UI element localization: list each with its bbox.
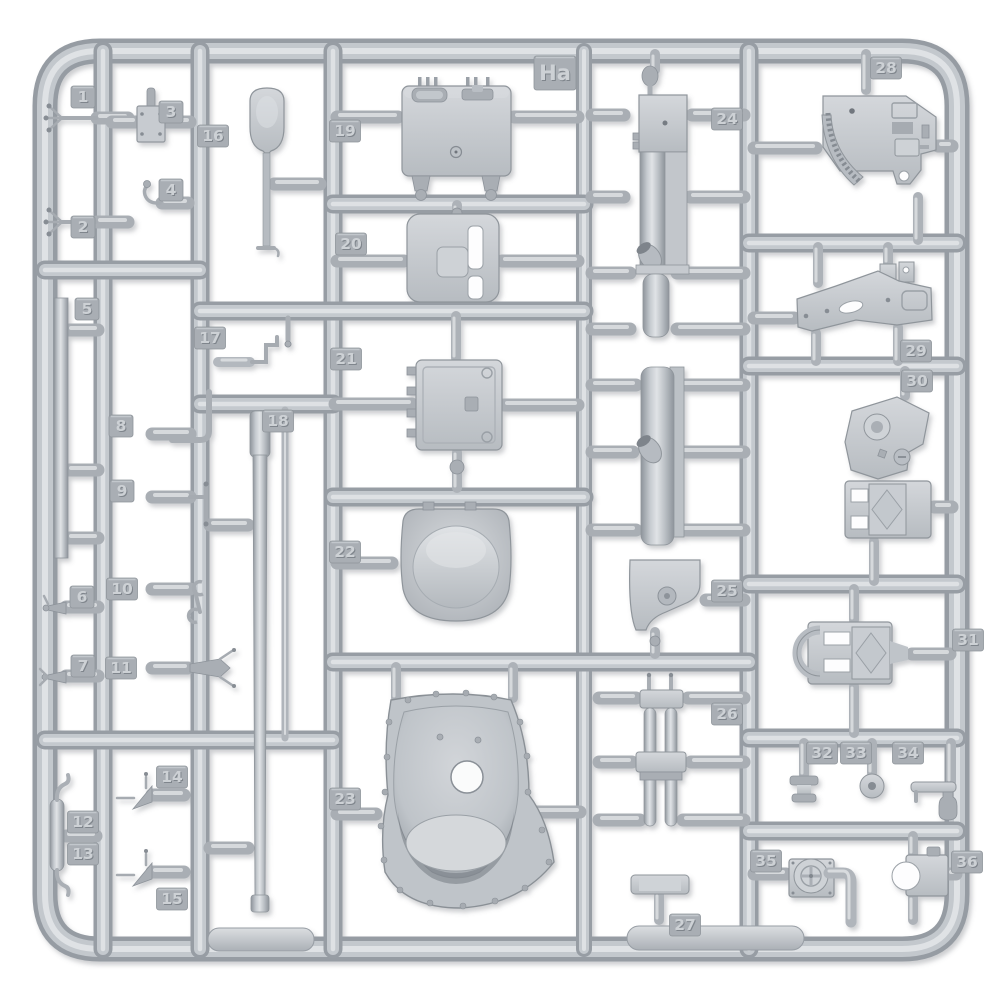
part-22-dome-hatch	[401, 502, 511, 621]
part-21-hinged-hatch	[407, 360, 502, 450]
svg-text:2: 2	[78, 218, 89, 236]
part-number-tag: 2828	[871, 57, 902, 79]
part-number-tag: 2020	[336, 233, 367, 255]
part-number-tag: 3333	[841, 742, 872, 764]
svg-text:25: 25	[716, 582, 738, 600]
part-number-tag: 3232	[807, 742, 838, 764]
part-number-tag: 2727	[670, 914, 701, 936]
svg-text:9: 9	[117, 482, 128, 500]
part-number-tag: 3636	[952, 851, 983, 873]
gate-ball	[450, 460, 464, 474]
svg-text:16: 16	[202, 127, 224, 145]
svg-text:32: 32	[811, 744, 833, 762]
part-5-flat-strip	[54, 298, 68, 558]
photo-model-kit-sprue: Ha	[0, 0, 1000, 1000]
svg-text:6: 6	[77, 588, 88, 606]
svg-text:Ha: Ha	[539, 61, 571, 85]
part-number-tag: 1111	[106, 657, 137, 679]
svg-text:33: 33	[845, 744, 867, 762]
part-number-tag: 2626	[712, 703, 743, 725]
part-number-tag: 99	[110, 480, 134, 502]
svg-text:11: 11	[110, 659, 132, 677]
part-number-tag: 3535	[751, 850, 782, 872]
part-number-tag: 1010	[107, 578, 138, 600]
svg-text:3: 3	[166, 103, 177, 121]
part-number-tag: 1515	[157, 888, 188, 910]
svg-text:36: 36	[956, 853, 978, 871]
part-number-tag: 1717	[195, 327, 226, 349]
part-31-axle-bracket	[797, 622, 908, 684]
svg-text:7: 7	[78, 657, 89, 675]
part-number-tag: 3434	[893, 742, 924, 764]
part-number-tag: 2424	[712, 108, 743, 130]
part-number-tag: 22	[71, 216, 95, 238]
part-number-tag: 1616	[198, 125, 229, 147]
svg-text:30: 30	[906, 372, 928, 390]
part-number-tag: 2222	[330, 541, 361, 563]
svg-text:8: 8	[116, 417, 127, 435]
part-33-disc	[860, 774, 884, 798]
part-number-tag: 1818	[263, 410, 294, 432]
svg-text:29: 29	[905, 342, 927, 360]
part-number-tag: 2929	[901, 340, 932, 362]
svg-text:18: 18	[267, 412, 289, 430]
part-number-tag: 1919	[330, 120, 361, 142]
svg-text:5: 5	[82, 300, 93, 318]
svg-text:22: 22	[334, 543, 356, 561]
svg-text:15: 15	[161, 890, 183, 908]
svg-text:27: 27	[674, 916, 696, 934]
svg-text:4: 4	[166, 181, 177, 199]
sprue-image: Ha	[0, 0, 1000, 1000]
svg-text:20: 20	[340, 235, 362, 253]
svg-text:21: 21	[335, 350, 357, 368]
part-number-tag: 2525	[712, 580, 743, 602]
part-number-tag: 1414	[157, 766, 188, 788]
svg-text:24: 24	[716, 110, 738, 128]
part-number-tag: 3030	[902, 370, 933, 392]
svg-text:13: 13	[72, 845, 94, 863]
svg-text:19: 19	[334, 122, 356, 140]
part-number-tag: 33	[159, 101, 183, 123]
svg-text:17: 17	[199, 329, 221, 347]
part-27-flat-bar	[631, 875, 689, 894]
part-number-tag: 77	[71, 655, 95, 677]
svg-text:14: 14	[161, 768, 183, 786]
svg-text:35: 35	[755, 852, 777, 870]
svg-text:10: 10	[111, 580, 133, 598]
part-number-tag: 44	[159, 179, 183, 201]
part-20-hatch-plate	[407, 214, 499, 302]
svg-text:26: 26	[716, 705, 738, 723]
part-number-tag: 11	[71, 86, 95, 108]
sprue-letter-tag: HaHa	[534, 56, 576, 90]
svg-text:1: 1	[78, 88, 89, 106]
part-number-tag: 55	[75, 298, 99, 320]
svg-text:28: 28	[875, 59, 897, 77]
gate-ball	[650, 636, 660, 646]
svg-text:23: 23	[334, 790, 356, 808]
svg-text:31: 31	[957, 631, 979, 649]
svg-text:12: 12	[72, 813, 94, 831]
part-number-tag: 2121	[331, 348, 362, 370]
part-number-tag: 1212	[68, 811, 99, 833]
part-number-tag: 1313	[68, 843, 99, 865]
part-number-tag: 88	[109, 415, 133, 437]
part-number-tag: 3131	[953, 629, 984, 651]
svg-text:34: 34	[897, 744, 919, 762]
part-number-tag: 66	[70, 586, 94, 608]
part-number-tag: 2323	[330, 788, 361, 810]
